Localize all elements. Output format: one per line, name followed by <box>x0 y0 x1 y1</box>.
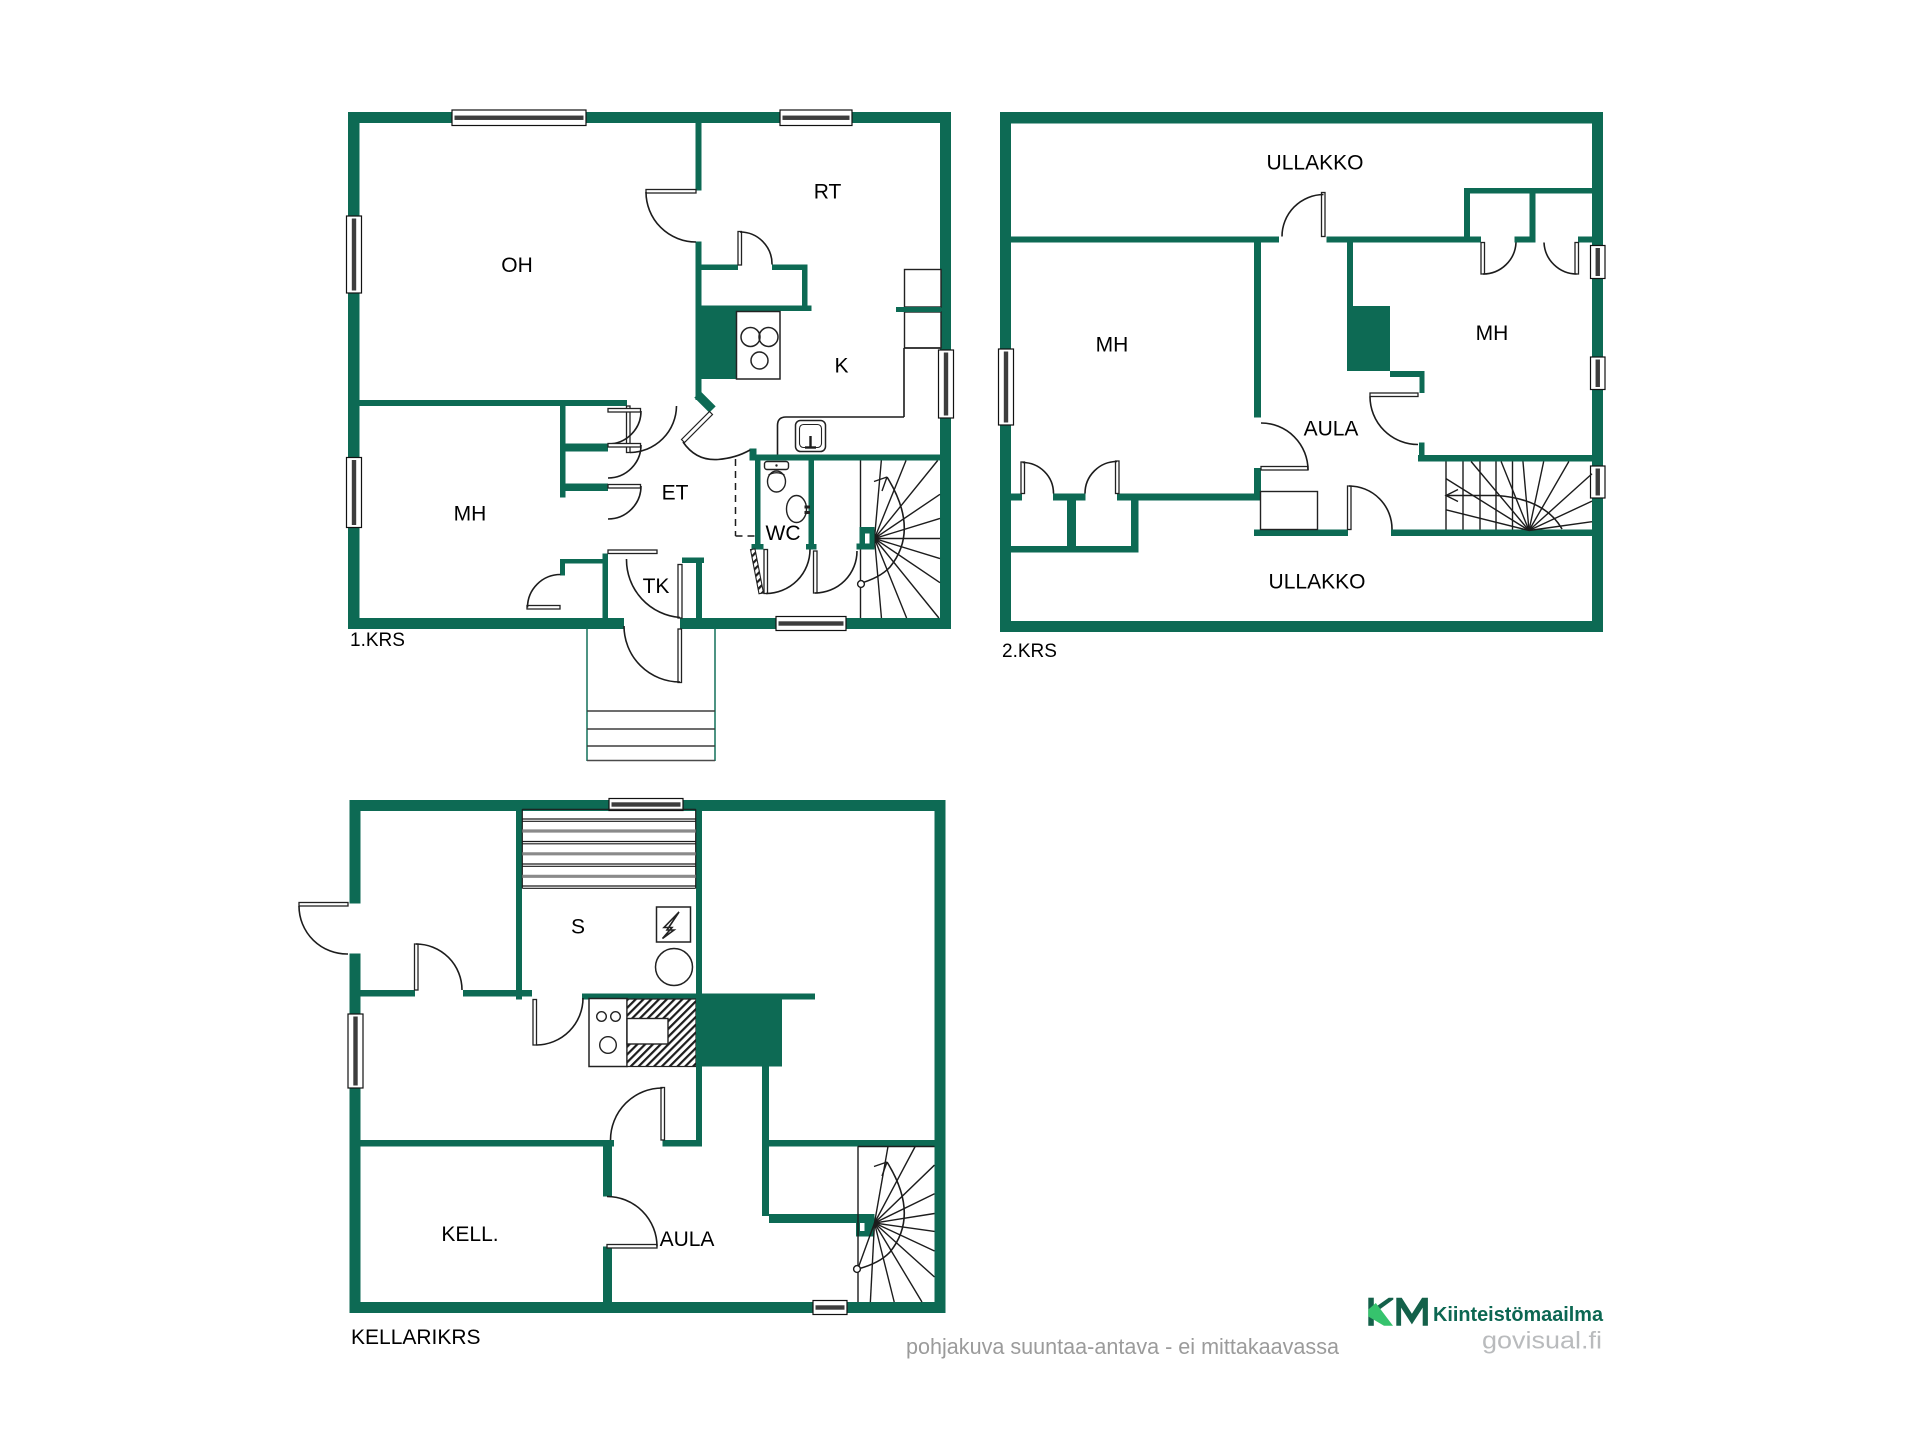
svg-text:pohjakuva suuntaa-antava - ei: pohjakuva suuntaa-antava - ei mittakaava… <box>906 1334 1340 1359</box>
svg-text:2.KRS: 2.KRS <box>1002 641 1057 662</box>
svg-text:1.KRS: 1.KRS <box>350 630 405 651</box>
svg-text:ULLAKKO: ULLAKKO <box>1269 571 1366 594</box>
svg-text:KELLARIKRS: KELLARIKRS <box>351 1326 481 1349</box>
svg-text:K: K <box>834 355 848 378</box>
svg-text:KELL.: KELL. <box>441 1223 498 1246</box>
svg-text:MH: MH <box>1096 334 1129 357</box>
svg-text:AULA: AULA <box>1304 418 1359 441</box>
svg-text:TK: TK <box>643 575 670 598</box>
svg-text:MH: MH <box>1476 322 1509 345</box>
svg-text:Kiinteistömaailma: Kiinteistömaailma <box>1433 1304 1604 1326</box>
svg-text:MH: MH <box>454 503 487 526</box>
svg-text:RT: RT <box>814 181 842 204</box>
svg-text:ULLAKKO: ULLAKKO <box>1267 152 1364 175</box>
svg-text:OH: OH <box>501 254 533 277</box>
svg-text:ET: ET <box>662 482 689 505</box>
svg-text:govisual.fi: govisual.fi <box>1482 1328 1602 1355</box>
svg-text:S: S <box>571 916 585 939</box>
svg-text:AULA: AULA <box>660 1228 715 1251</box>
svg-text:WC: WC <box>766 522 801 545</box>
